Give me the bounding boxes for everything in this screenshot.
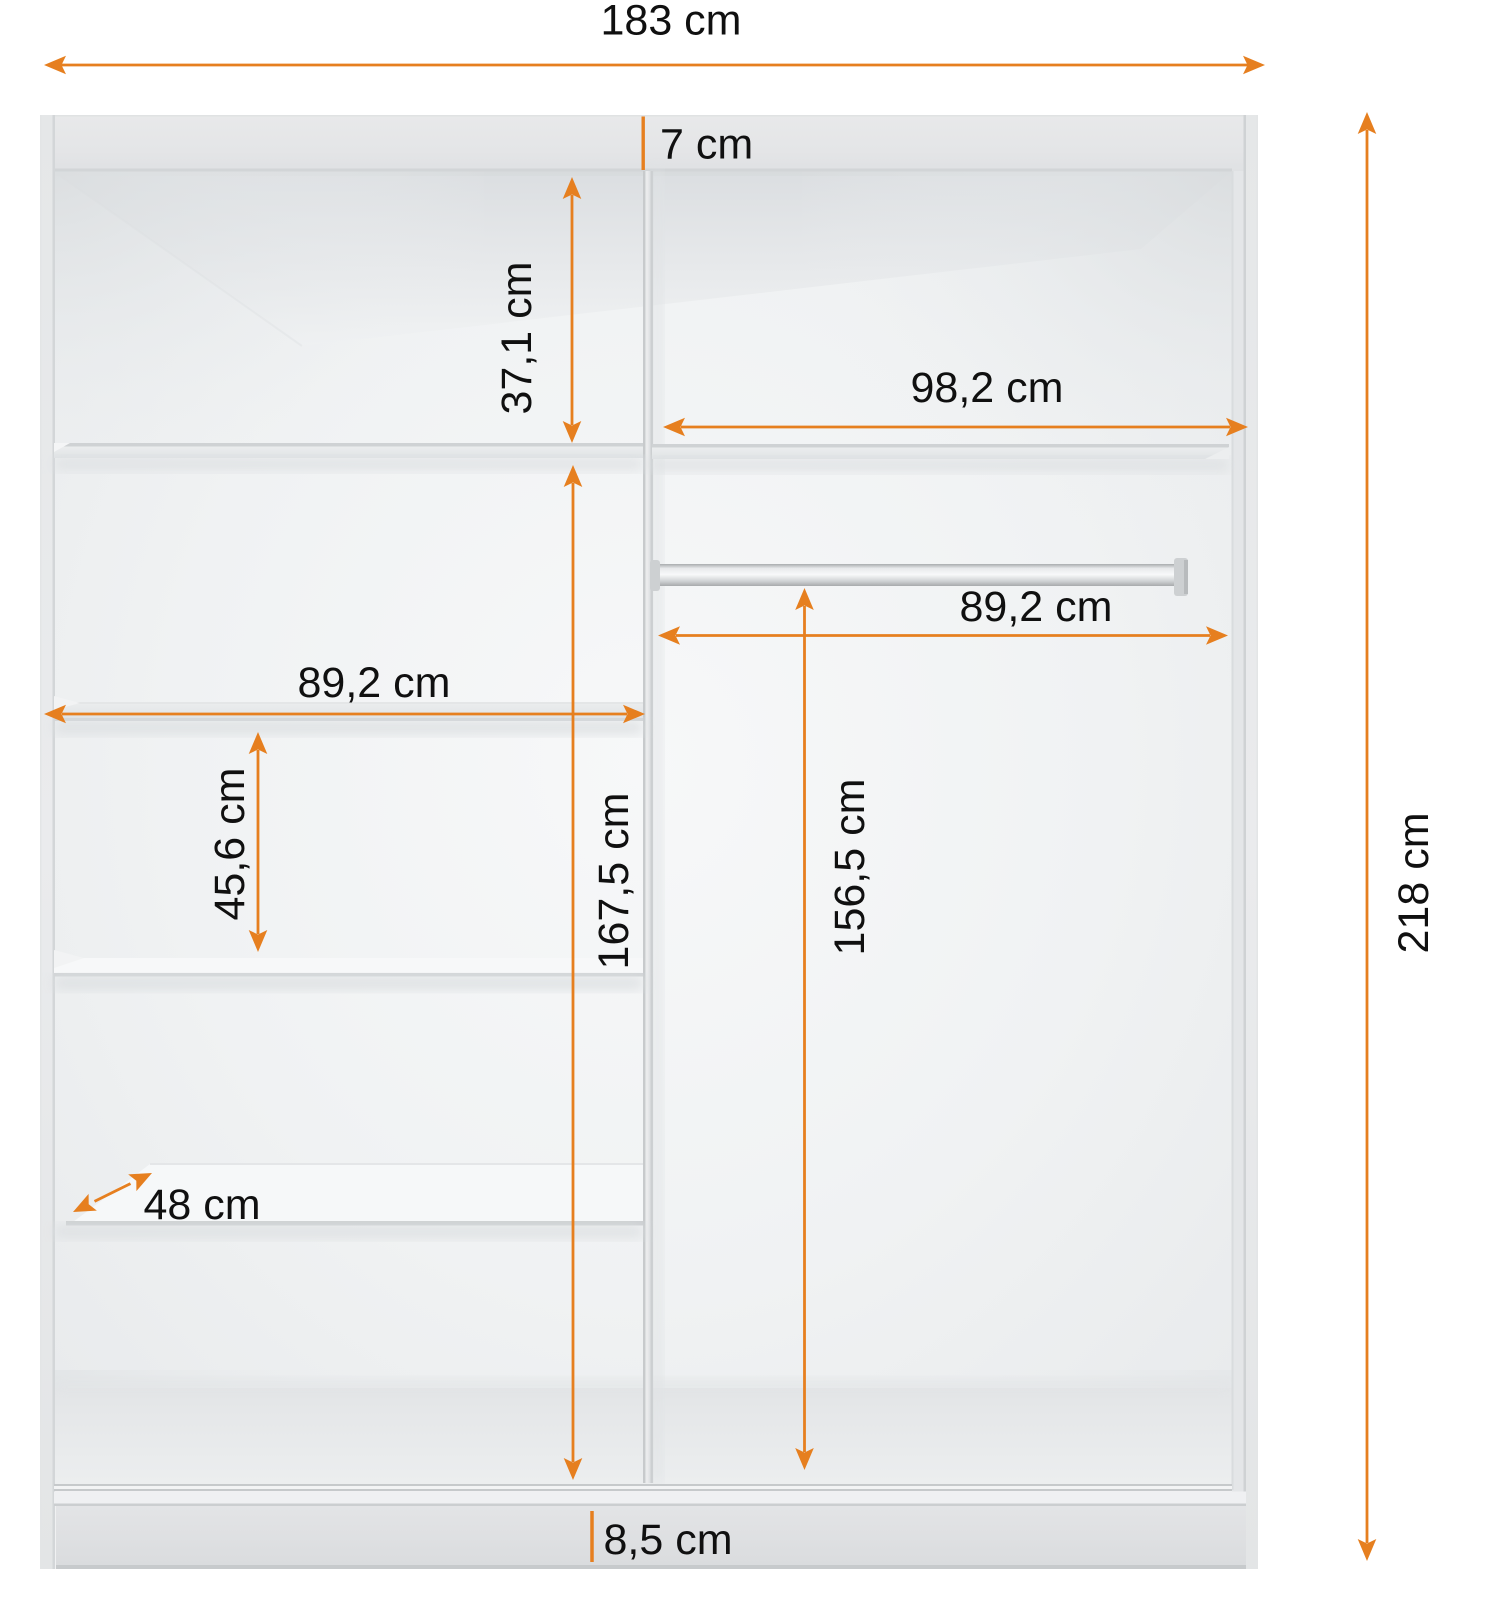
- svg-text:156,5 cm: 156,5 cm: [826, 779, 874, 956]
- svg-text:167,5 cm: 167,5 cm: [590, 793, 638, 970]
- svg-text:8,5 cm: 8,5 cm: [603, 1516, 732, 1564]
- svg-text:98,2 cm: 98,2 cm: [911, 364, 1064, 412]
- svg-text:218 cm: 218 cm: [1390, 812, 1438, 953]
- svg-text:89,2 cm: 89,2 cm: [960, 583, 1113, 631]
- svg-text:183 cm: 183 cm: [600, 0, 741, 45]
- svg-text:89,2 cm: 89,2 cm: [298, 659, 451, 707]
- svg-text:37,1 cm: 37,1 cm: [493, 262, 541, 415]
- svg-text:45,6 cm: 45,6 cm: [206, 768, 254, 921]
- svg-text:7 cm: 7 cm: [660, 121, 753, 169]
- svg-text:48 cm: 48 cm: [143, 1181, 260, 1229]
